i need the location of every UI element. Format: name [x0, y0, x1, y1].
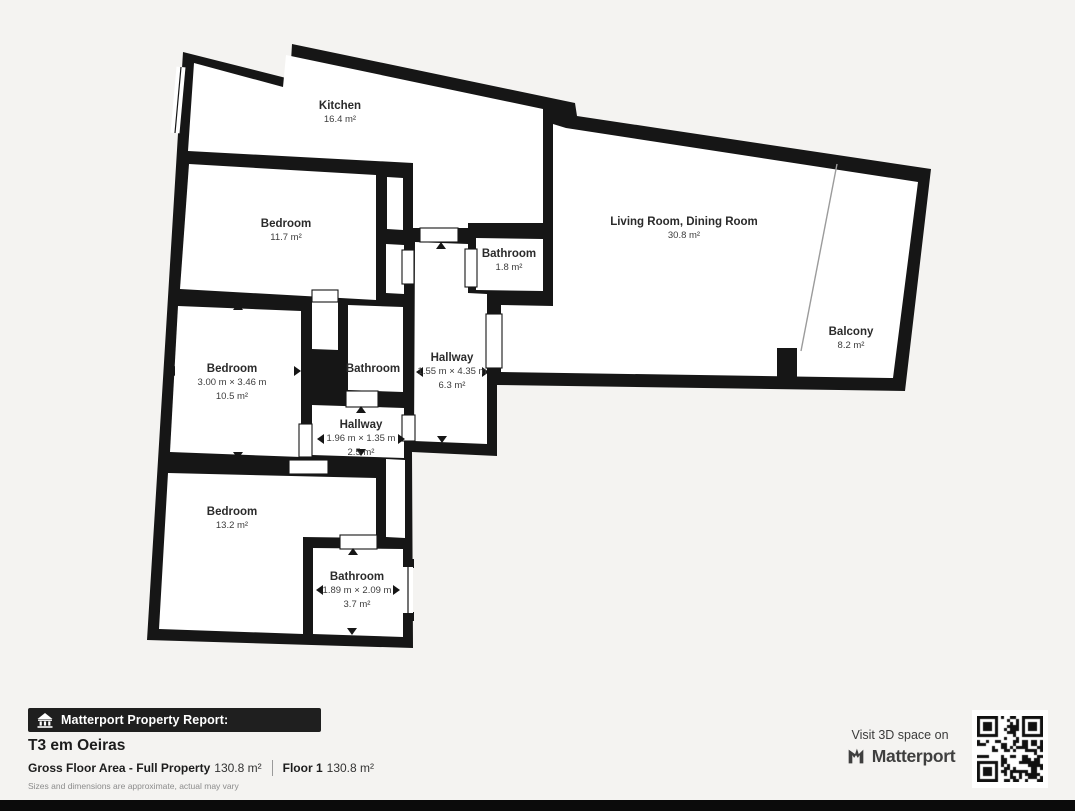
building-icon [37, 713, 53, 728]
matterport-wordmark: Matterport [872, 746, 956, 767]
room-name: Hallway [327, 418, 396, 432]
room-name: Bathroom [323, 570, 392, 584]
room-area: 13.2 m² [207, 519, 257, 533]
stats-divider [272, 760, 273, 776]
gross-area-label: Gross Floor Area - Full Property [28, 761, 210, 775]
room-name: Kitchen [319, 99, 361, 113]
door-hallway-living [486, 314, 502, 368]
matterport-mark-icon [845, 745, 867, 767]
disclaimer-text: Sizes and dimensions are approximate, ac… [28, 781, 239, 791]
property-title: T3 em Oeiras [28, 737, 125, 755]
room-bathroom-mid-floor [348, 305, 403, 392]
room-area: 11.7 m² [261, 231, 311, 245]
room-label-bathroom-37: Bathroom 1.89 m × 2.09 m 3.7 m² [323, 570, 392, 612]
report-badge: Matterport Property Report: [28, 708, 321, 732]
room-area: 10.5 m² [198, 390, 267, 404]
gross-area-value: 130.8 m² [214, 761, 261, 775]
room-name: Bedroom [198, 362, 267, 376]
room-area: 16.4 m² [319, 113, 361, 127]
room-label-bedroom-132: Bedroom 13.2 m² [207, 505, 257, 533]
room-dims: 1.55 m × 4.35 m [418, 365, 487, 379]
bottom-bar [0, 800, 1075, 811]
door-bathroom-37 [340, 535, 377, 549]
floor-value: 130.8 m² [327, 761, 374, 775]
room-dims: 3.00 m × 3.46 m [198, 376, 267, 390]
room-label-bedroom-117: Bedroom 11.7 m² [261, 217, 311, 245]
qr-code-canvas [977, 716, 1043, 782]
room-area: 2.5 m² [327, 446, 396, 460]
door-bathroom-mid [346, 391, 378, 407]
room-area: 1.8 m² [482, 261, 536, 275]
room-label-hallway-63: Hallway 1.55 m × 4.35 m 6.3 m² [418, 351, 487, 393]
room-area: 8.2 m² [829, 339, 874, 353]
room-name: Bedroom [207, 505, 257, 519]
room-floors [159, 55, 918, 637]
room-name: Living Room, Dining Room [610, 215, 758, 229]
duct-lower [386, 244, 404, 294]
room-area: 3.7 m² [323, 598, 392, 612]
room-label-living: Living Room, Dining Room 30.8 m² [610, 215, 758, 243]
property-report-page: { "plan": { "rooms": [ {"name": "Kitchen… [0, 0, 1075, 811]
balcony-pillar [777, 348, 797, 386]
door-kitchen-hallway [420, 228, 458, 242]
floor-plan: Kitchen 16.4 m² Bedroom 11.7 m² Bathroom… [0, 0, 1075, 705]
room-dims: 1.96 m × 1.35 m [327, 432, 396, 446]
room-label-bathroom-18: Bathroom 1.8 m² [482, 247, 536, 275]
room-label-kitchen: Kitchen 16.4 m² [319, 99, 361, 127]
duct-upper [387, 177, 403, 230]
qr-code [972, 710, 1048, 788]
room-dims: 1.89 m × 2.09 m [323, 584, 392, 598]
room-name: Bedroom [261, 217, 311, 231]
door-bedroom-132 [289, 460, 328, 474]
floor-label: Floor 1 [283, 761, 323, 775]
visit-3d-block: Visit 3D space on Matterport [840, 728, 960, 767]
door-hallway25-hallway63 [402, 415, 415, 441]
room-label-balcony: Balcony 8.2 m² [829, 325, 874, 353]
room-name: Hallway [418, 351, 487, 365]
visit-3d-text: Visit 3D space on [840, 728, 960, 742]
room-area: 6.3 m² [418, 379, 487, 393]
floor-plan-drawing [0, 0, 1075, 705]
room-label-bedroom-105: Bedroom 3.00 m × 3.46 m 10.5 m² [198, 362, 267, 404]
floor-stats: Gross Floor Area - Full Property 130.8 m… [28, 760, 374, 776]
room-area: 30.8 m² [610, 229, 758, 243]
door-bathroom-18 [465, 249, 477, 287]
matterport-logo: Matterport [840, 745, 960, 767]
door-bedroom-105 [299, 424, 312, 457]
door-duct-lower [402, 250, 414, 284]
room-label-bathroom-mid: Bathroom [346, 362, 400, 376]
room-label-hallway-25: Hallway 1.96 m × 1.35 m 2.5 m² [327, 418, 396, 460]
door-closet [312, 290, 338, 302]
report-badge-label: Matterport Property Report: [61, 713, 228, 727]
corridor-floor [386, 459, 405, 538]
room-name: Bathroom [346, 362, 400, 376]
room-name: Balcony [829, 325, 874, 339]
room-name: Bathroom [482, 247, 536, 261]
